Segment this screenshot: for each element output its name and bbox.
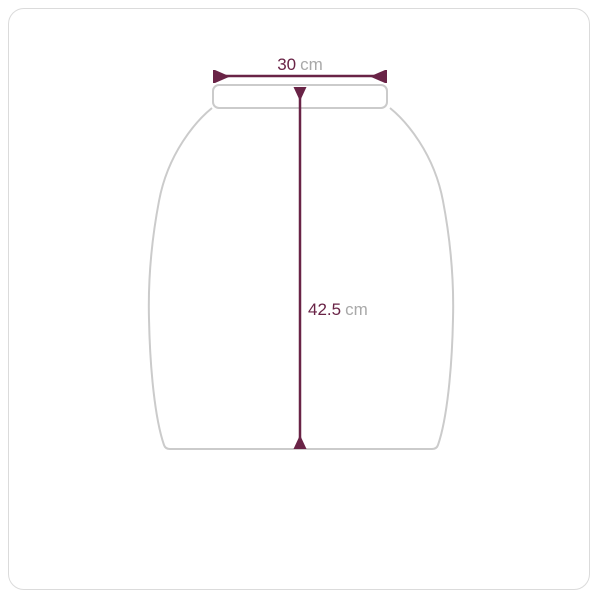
length-measurement-value: 42.5 [308,300,341,319]
length-dimension [294,87,307,449]
size-guide-page: 30cm 42.5cm [0,0,600,600]
width-measurement-value: 30 [277,55,296,74]
width-measurement-unit: cm [300,55,323,74]
garment-measurement-drawing [0,0,600,600]
length-measurement-label: 42.5cm [308,301,368,318]
length-measurement-unit: cm [345,300,368,319]
length-dimension-bottom-arrow-icon [294,435,307,449]
width-measurement-label: 30cm [0,56,600,73]
